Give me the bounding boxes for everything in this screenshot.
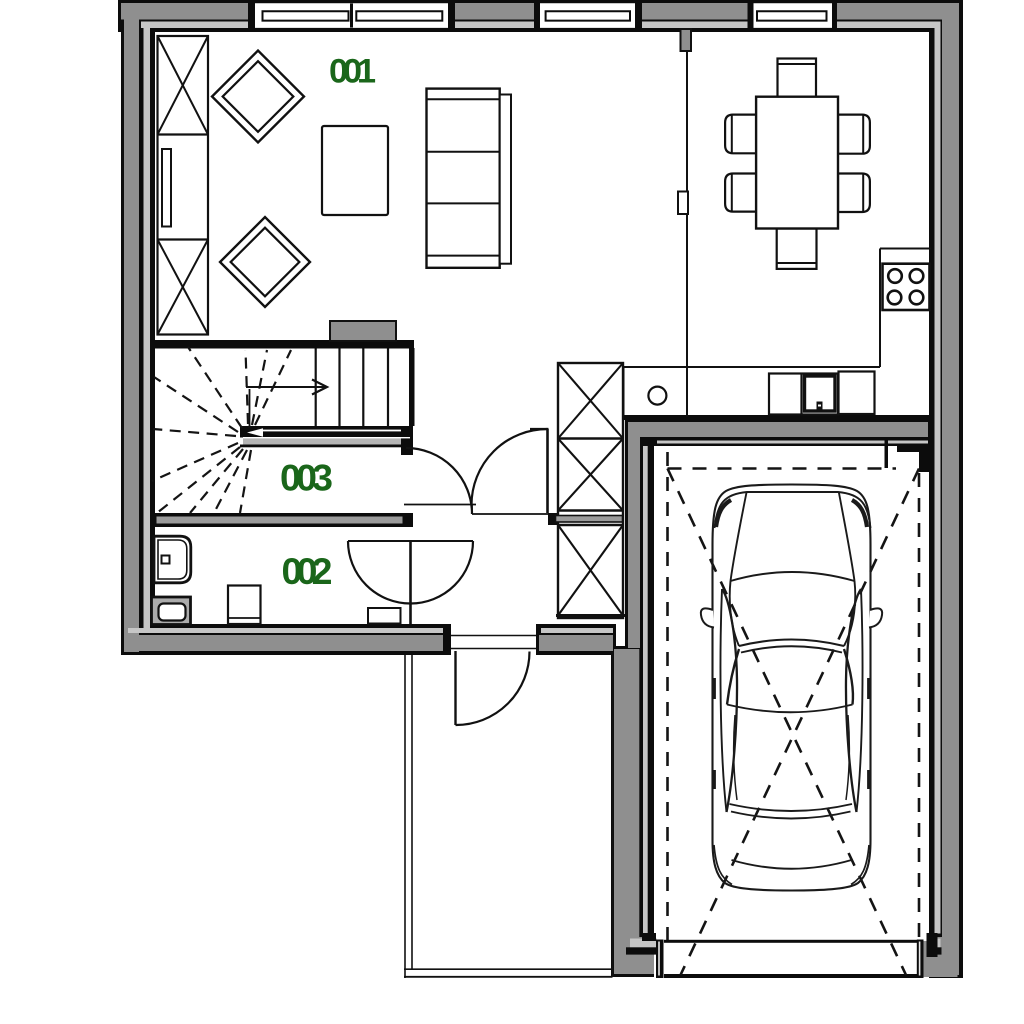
svg-text:003: 003 (280, 457, 333, 499)
svg-text:001: 001 (329, 53, 376, 91)
svg-text:002: 002 (282, 550, 333, 592)
